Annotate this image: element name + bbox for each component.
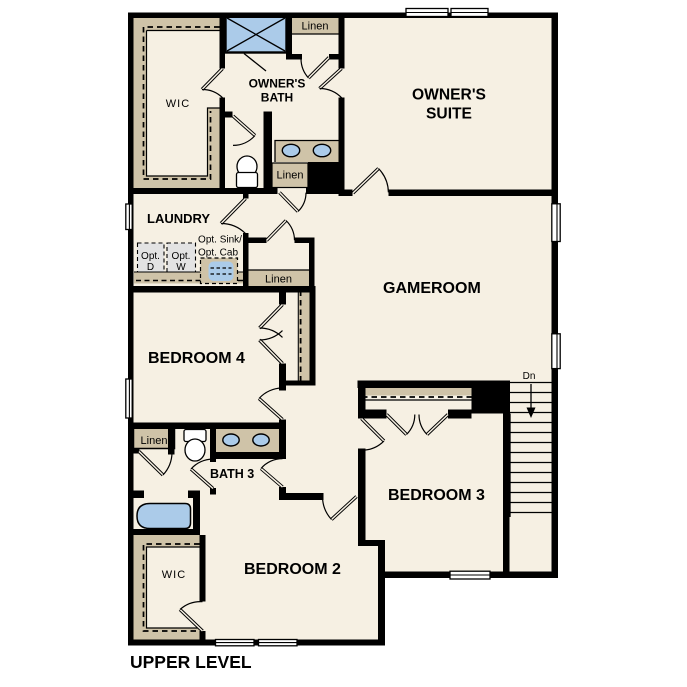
svg-text:BEDROOM 4: BEDROOM 4 — [148, 350, 245, 367]
svg-text:WIC: WIC — [162, 569, 186, 581]
svg-text:Opt. Sink/: Opt. Sink/ — [198, 235, 242, 246]
svg-text:SUITE: SUITE — [426, 106, 472, 123]
svg-text:D: D — [147, 262, 154, 273]
svg-text:Opt.: Opt. — [172, 251, 191, 262]
svg-text:Linen: Linen — [302, 21, 329, 33]
svg-text:OWNER'S: OWNER'S — [249, 77, 306, 91]
svg-text:BEDROOM 3: BEDROOM 3 — [388, 487, 485, 504]
svg-text:WIC: WIC — [166, 98, 190, 110]
svg-text:Opt.: Opt. — [141, 251, 160, 262]
svg-text:LAUNDRY: LAUNDRY — [147, 211, 210, 226]
svg-text:BATH 3: BATH 3 — [210, 467, 254, 481]
svg-text:Linen: Linen — [141, 435, 168, 447]
svg-text:OWNER'S: OWNER'S — [412, 87, 486, 104]
svg-text:Dn: Dn — [523, 371, 536, 382]
svg-text:Opt. Cab: Opt. Cab — [198, 248, 238, 259]
svg-text:GAMEROOM: GAMEROOM — [383, 280, 481, 297]
svg-text:BEDROOM 2: BEDROOM 2 — [244, 561, 341, 578]
svg-text:Linen: Linen — [277, 170, 304, 182]
svg-text:BATH: BATH — [261, 91, 293, 105]
svg-text:W: W — [176, 262, 186, 273]
svg-text:Linen: Linen — [265, 274, 292, 286]
svg-text:UPPER LEVEL: UPPER LEVEL — [130, 652, 252, 672]
